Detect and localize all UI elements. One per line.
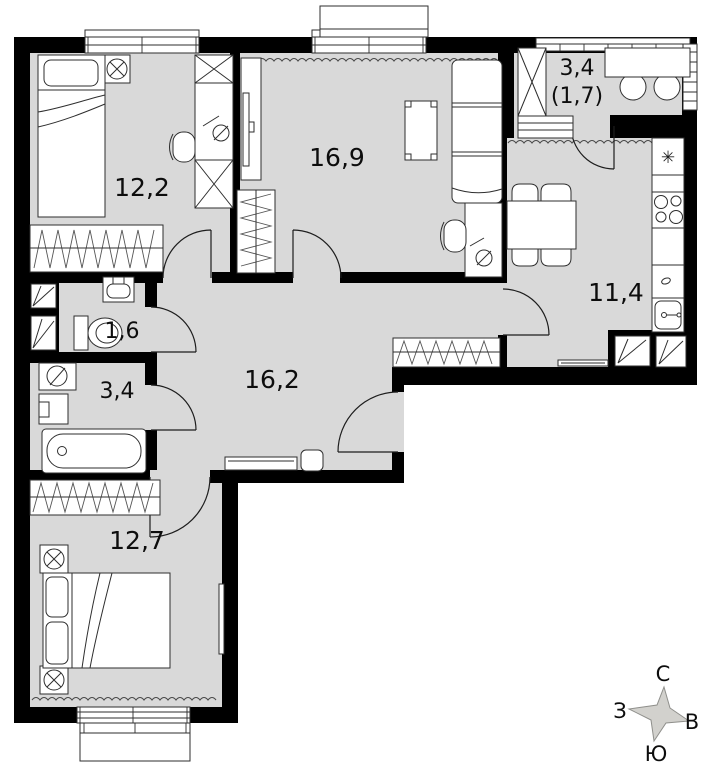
ceiling-light-icon — [105, 55, 130, 83]
bar-stool — [654, 74, 680, 100]
compass-star-icon — [629, 687, 689, 741]
wall-left — [14, 37, 30, 723]
floor-plan-page: ✳ — [0, 0, 705, 768]
label-hallway-area: 16,2 — [244, 365, 300, 394]
label-bedroom2-area: 12,7 — [109, 526, 165, 555]
compass-north: С — [656, 662, 671, 686]
label-wc-area: 1,6 — [105, 319, 140, 344]
label-balcony-reduced-area: (1,7) — [551, 84, 603, 109]
svg-text:✳: ✳ — [661, 148, 675, 168]
dining-table-set — [507, 184, 576, 266]
wall-bedroom1-bottom-right — [212, 272, 240, 283]
label-balcony-area: 3,4 — [560, 56, 595, 81]
label-kitchen-area: 11,4 — [588, 278, 644, 307]
wall-hall-bottom — [210, 470, 404, 483]
compass-rose: С З В Ю — [613, 662, 699, 766]
tv — [243, 93, 249, 166]
balcony-outline-top — [320, 6, 428, 37]
fridge-icon: ✳ — [652, 138, 684, 175]
label-bathroom-area: 3,4 — [100, 379, 135, 404]
wall-wc-b — [145, 352, 157, 385]
vent-shaft-icon — [615, 336, 650, 366]
vent-shaft-icon — [31, 316, 56, 350]
hob-icon — [652, 192, 684, 228]
shoe-bench — [225, 457, 297, 470]
kitchen-cabinet — [652, 265, 684, 298]
balcony-cabinet — [518, 116, 573, 138]
bed-double — [43, 573, 170, 668]
label-living-area: 16,9 — [309, 143, 365, 172]
ceiling-light-icon — [40, 545, 68, 573]
kitchen-counter — [652, 175, 684, 192]
dining-chair — [541, 247, 571, 266]
closet-hatched-bedroom2 — [30, 480, 160, 515]
pillow — [44, 60, 98, 86]
wall-wc-a — [145, 283, 157, 307]
vent-shaft-icon — [31, 284, 56, 308]
bathroom-sink — [39, 394, 68, 424]
ceiling-light-icon — [40, 666, 68, 694]
wall-mirror — [219, 584, 224, 654]
dining-table — [507, 201, 576, 249]
stool — [301, 450, 323, 471]
closet-hatched-living — [237, 190, 275, 273]
kitchen-sink-icon — [652, 298, 684, 332]
wall-entry-bottom — [392, 452, 404, 483]
coffee-table — [405, 101, 437, 160]
wc-basin — [103, 277, 134, 302]
dining-chair — [512, 184, 538, 203]
dining-chair — [512, 247, 538, 266]
wall-balcony-kitchen — [610, 115, 687, 138]
compass-east: В — [685, 710, 699, 734]
bar-stool — [620, 74, 646, 100]
kitchen-counter — [652, 228, 684, 265]
compass-west: З — [613, 699, 626, 723]
entry-closet-hatched — [393, 338, 500, 367]
compass-south: Ю — [645, 742, 668, 766]
washing-machine-icon — [39, 363, 76, 390]
bar-counter — [605, 48, 690, 77]
floor-plan-drawing: ✳ — [0, 0, 705, 768]
dining-chair — [541, 184, 571, 203]
floor-mat — [558, 360, 608, 366]
bathtub — [42, 429, 146, 473]
label-bedroom1-area: 12,2 — [114, 173, 170, 202]
closet-hatched — [30, 225, 163, 272]
sofa — [452, 60, 502, 203]
wall-wc-c — [145, 430, 157, 470]
desk — [195, 83, 233, 160]
vent-shaft-icon — [656, 336, 686, 367]
window-bedroom2 — [77, 707, 190, 723]
wall-living-bottom-left — [240, 272, 293, 283]
